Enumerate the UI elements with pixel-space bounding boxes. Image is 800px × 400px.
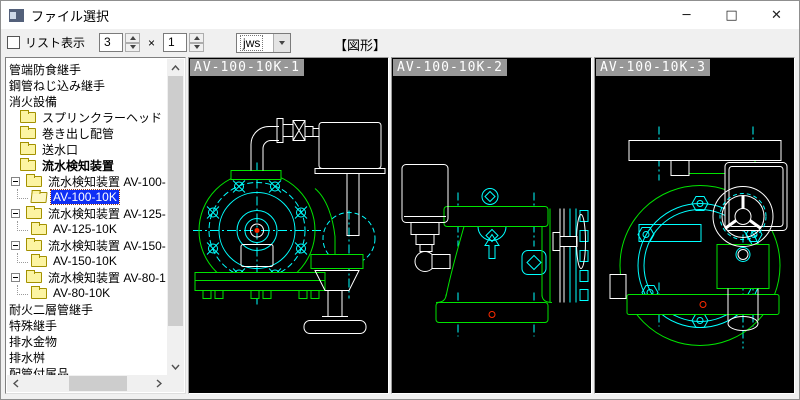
folder-icon [31,256,47,267]
tree-connector [17,221,28,231]
cad-drawing-alarm-valve-view1 [189,58,388,393]
tree-horizontal-scrollbar[interactable] [7,375,167,392]
chevron-down-icon [279,41,285,45]
tree-item-label: AV-100-10K [51,190,119,204]
scroll-right-button[interactable] [150,375,167,392]
arrow-up-icon [130,36,136,40]
tree-connector [17,189,28,199]
rows-up-button[interactable] [189,33,204,43]
tree-item[interactable]: 流水検知装置 AV-100- [7,173,167,189]
tree-item[interactable]: 流水検知装置 AV-80-1 [7,269,167,285]
tree-item[interactable]: 排水桝 [7,349,167,365]
figure-label: 【図形】 [334,35,386,54]
folder-icon [26,208,42,219]
maximize-button[interactable]: □ [709,1,754,29]
scrollbar-corner [167,375,184,392]
columns-down-button[interactable] [125,43,140,53]
toolbar: リスト表示 3 × 1 jws 【図形】 [1,29,799,56]
tree-item-label: 鋼管ねじ込み継手 [7,77,107,94]
folder-icon [26,176,42,187]
columns-up-button[interactable] [125,33,140,43]
chevron-right-icon [156,379,162,388]
tree-item[interactable]: 鋼管ねじ込み継手 [7,77,167,93]
tree-item[interactable]: 送水口 [7,141,167,157]
drawing-label: AV-100-10K-1 [190,59,304,76]
rows-value[interactable]: 1 [163,33,187,52]
drawing-label: AV-100-10K-2 [393,59,507,76]
tree-item-label: 流水検知装置 AV-100- [46,173,167,190]
tree-item-label: 排水金物 [7,333,59,350]
expander-minus-icon[interactable] [11,177,20,186]
app-icon [9,9,24,22]
tree-item-label: 管端防食継手 [7,61,83,78]
tree-item[interactable]: 流水検知装置 AV-125- [7,205,167,221]
expander-minus-icon[interactable] [11,209,20,218]
folder-icon [20,128,36,139]
folder-open-icon [30,192,47,203]
scroll-up-button[interactable] [167,59,184,76]
folder-icon [20,160,36,171]
tree-item-label: 特殊継手 [7,317,59,334]
tree-item[interactable]: 耐火二層管継手 [7,301,167,317]
tree-item-label: 流水検知装置 AV-125- [46,205,167,222]
tree-item[interactable]: スプリンクラーヘッド [7,109,167,125]
rows-stepper[interactable]: 1 [163,33,204,52]
filetype-dropdown[interactable]: jws [236,33,291,53]
tree-vertical-scrollbar[interactable] [167,59,184,375]
tree-item[interactable]: 流水検知装置 [7,157,167,173]
tree-item[interactable]: AV-125-10K [7,221,167,237]
tree-connector [17,253,28,263]
window-title: ファイル選択 [31,6,109,25]
chevron-up-icon [171,65,180,71]
tree-item[interactable]: 特殊継手 [7,317,167,333]
filetype-value: jws [241,36,262,50]
chevron-left-icon [13,379,19,388]
vertical-scroll-thumb[interactable] [168,76,183,326]
rows-down-button[interactable] [189,43,204,53]
tree-item-label: 送水口 [40,141,80,158]
tree-item-label: 消火設備 [7,93,59,110]
tree-item[interactable]: 消火設備 [7,93,167,109]
tree-item-label: 巻き出し配管 [40,125,116,142]
tree-item[interactable]: AV-100-10K [7,189,167,205]
times-label: × [148,36,155,50]
tree-item[interactable]: AV-150-10K [7,253,167,269]
tree-item[interactable]: AV-80-10K [7,285,167,301]
expander-minus-icon[interactable] [11,241,20,250]
columns-stepper[interactable]: 3 [99,33,140,52]
dropdown-button[interactable] [273,34,290,52]
titlebar: ファイル選択 ─ □ ✕ [1,1,799,29]
drawing-label: AV-100-10K-3 [596,59,710,76]
chevron-down-icon [171,364,180,370]
scroll-left-button[interactable] [7,375,24,392]
tree-item-label: 耐火二層管継手 [7,301,95,318]
tree-item[interactable]: 巻き出し配管 [7,125,167,141]
cad-drawing-alarm-valve-view3 [595,58,794,393]
folder-icon [31,288,47,299]
tree-item-label: スプリンクラーヘッド [40,109,164,126]
folder-icon [20,112,36,123]
folder-tree-panel: 管端防食継手鋼管ねじ込み継手消火設備スプリンクラーヘッド巻き出し配管送水口流水検… [5,57,186,394]
expander-minus-icon[interactable] [11,273,20,282]
close-button[interactable]: ✕ [754,1,799,29]
file-select-dialog: ファイル選択 ─ □ ✕ リスト表示 3 × 1 jws [0,0,800,400]
minimize-button[interactable]: ─ [664,1,709,29]
tree-item-label: 流水検知装置 AV-150- [46,237,167,254]
tree-connector [17,285,28,295]
tree: 管端防食継手鋼管ねじ込み継手消火設備スプリンクラーヘッド巻き出し配管送水口流水検… [7,59,167,375]
list-view-label: リスト表示 [25,34,85,51]
tree-item[interactable]: 排水金物 [7,333,167,349]
list-view-checkbox[interactable] [7,36,20,49]
horizontal-scroll-thumb[interactable] [69,376,127,391]
folder-icon [26,272,42,283]
folder-icon [26,240,42,251]
cad-drawing-alarm-valve-view2 [392,58,591,393]
tree-item-label: AV-80-10K [51,286,112,300]
scroll-down-button[interactable] [167,358,184,375]
folder-icon [31,224,47,235]
preview-panel-2[interactable]: AV-100-10K-2 [391,57,592,394]
tree-item-label: 配管付属品 [7,365,71,376]
arrow-down-icon [130,45,136,49]
tree-item[interactable]: 配管付属品 [7,365,167,375]
preview-panel-3[interactable]: AV-100-10K-3 [594,57,795,394]
preview-panel-1[interactable]: AV-100-10K-1 [188,57,389,394]
tree-item[interactable]: 流水検知装置 AV-150- [7,237,167,253]
tree-item-label: AV-125-10K [51,222,119,236]
tree-item-label: 流水検知装置 [40,157,116,174]
tree-item-label: 排水桝 [7,349,47,366]
tree-item-label: AV-150-10K [51,254,119,268]
preview-area: AV-100-10K-1 [188,57,795,394]
arrow-up-icon [194,36,200,40]
columns-value[interactable]: 3 [99,33,123,52]
tree-item-label: 流水検知装置 AV-80-1 [46,269,167,286]
folder-icon [20,144,36,155]
arrow-down-icon [194,45,200,49]
tree-item[interactable]: 管端防食継手 [7,61,167,77]
